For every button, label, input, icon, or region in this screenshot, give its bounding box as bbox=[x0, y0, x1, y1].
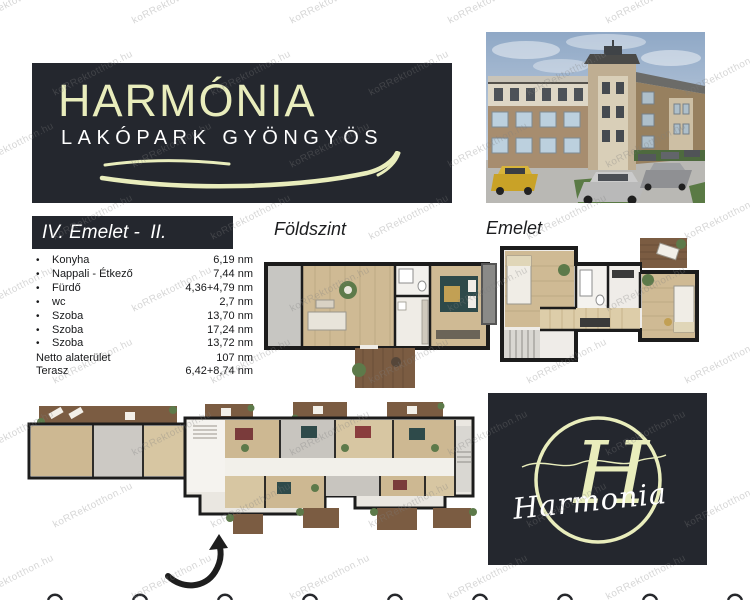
building-level-plan bbox=[25, 396, 480, 596]
summary-row: Terasz 6,42+8,74 nm bbox=[36, 365, 253, 378]
summary-list: Netto alaterület 107 nm Terasz 6,42+8,74… bbox=[36, 352, 253, 378]
room-label: Szoba bbox=[52, 337, 207, 350]
room-label: wc bbox=[52, 296, 219, 309]
brand-title: HARMÓNIA bbox=[58, 75, 317, 127]
room-list: • Konyha 6,19 nm • Nappali - Étkező 7,44… bbox=[36, 254, 253, 351]
room-value: 4,36+4,79 nm bbox=[185, 282, 253, 295]
unit-title-bar: IV. Emelet - II. bbox=[32, 216, 233, 249]
summary-value: 107 nm bbox=[216, 352, 253, 365]
bullet-icon: • bbox=[36, 311, 52, 324]
bullet-icon: • bbox=[36, 325, 52, 338]
swoosh-icon bbox=[87, 151, 427, 199]
flyer-page: HARMÓNIA LAKÓPARK GYÖNGYÖS bbox=[0, 0, 750, 600]
summary-row: Netto alaterület 107 nm bbox=[36, 352, 253, 365]
brand-header-panel: HARMÓNIA LAKÓPARK GYÖNGYÖS bbox=[32, 63, 452, 203]
watermark-text: koRRektotthon.hu bbox=[446, 0, 529, 26]
room-label: Konyha bbox=[52, 254, 213, 267]
bullet-icon: • bbox=[36, 283, 52, 296]
ground-floor-plan bbox=[260, 250, 495, 392]
room-value: 2,7 nm bbox=[219, 296, 253, 309]
watermark-text: koRRektotthon.hu bbox=[130, 0, 213, 26]
watermark-text: koRRektotthon.hu bbox=[288, 0, 371, 26]
room-label: Fürdő bbox=[52, 282, 185, 295]
room-value: 6,19 nm bbox=[213, 254, 253, 267]
upper-floor-plan bbox=[480, 218, 728, 366]
room-row: • Fürdő 4,36+4,79 nm bbox=[36, 282, 253, 296]
room-value: 17,24 nm bbox=[207, 324, 253, 337]
summary-label: Netto alaterület bbox=[36, 352, 216, 365]
room-value: 7,44 nm bbox=[213, 268, 253, 281]
brand-subtitle: LAKÓPARK GYÖNGYÖS bbox=[61, 127, 383, 150]
room-row: • Szoba 13,70 nm bbox=[36, 310, 253, 324]
room-row: • Szoba 13,72 nm bbox=[36, 337, 253, 351]
summary-value: 6,42+8,74 nm bbox=[185, 365, 253, 378]
room-row: • wc 2,7 nm bbox=[36, 296, 253, 310]
unit-title: IV. Emelet - II. bbox=[42, 222, 166, 244]
room-row: • Szoba 17,24 nm bbox=[36, 324, 253, 338]
room-row: • Konyha 6,19 nm bbox=[36, 254, 253, 268]
summary-label: Terasz bbox=[36, 365, 185, 378]
bullet-icon: • bbox=[36, 269, 52, 282]
bullet-icon: • bbox=[36, 297, 52, 310]
room-label: Szoba bbox=[52, 310, 207, 323]
room-row: • Nappali - Étkező 7,44 nm bbox=[36, 268, 253, 282]
building-render-photo bbox=[486, 32, 705, 203]
harmonia-logo-icon: H Harmonia bbox=[488, 393, 707, 565]
bottom-crop-marks bbox=[0, 591, 750, 600]
pointer-arrow-icon bbox=[168, 534, 228, 585]
bullet-icon: • bbox=[36, 255, 52, 268]
watermark-text: koRRektotthon.hu bbox=[0, 0, 56, 26]
ground-floor-label: Földszint bbox=[274, 219, 346, 240]
room-value: 13,70 nm bbox=[207, 310, 253, 323]
bullet-icon: • bbox=[36, 338, 52, 351]
watermark-text: koRRektotthon.hu bbox=[604, 0, 687, 26]
logo-block: H Harmonia bbox=[488, 393, 707, 565]
room-label: Nappali - Étkező bbox=[52, 268, 213, 281]
room-value: 13,72 nm bbox=[207, 337, 253, 350]
room-label: Szoba bbox=[52, 324, 207, 337]
